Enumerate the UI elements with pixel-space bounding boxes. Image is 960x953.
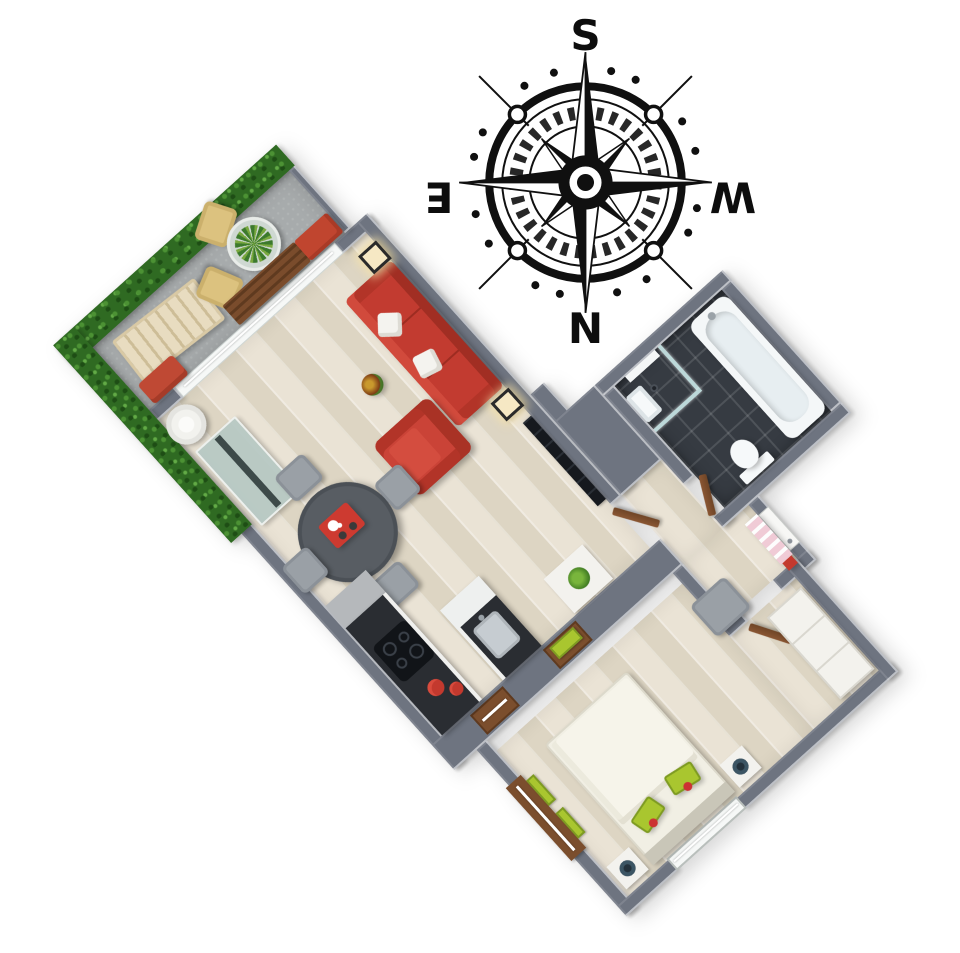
compass-letter-south: S bbox=[570, 11, 600, 60]
floor-plan-scene: S N E W bbox=[0, 0, 960, 953]
sofa-pillow-1 bbox=[377, 312, 402, 337]
apartment-plan bbox=[0, 0, 960, 953]
compass-letter-west: W bbox=[710, 173, 756, 222]
